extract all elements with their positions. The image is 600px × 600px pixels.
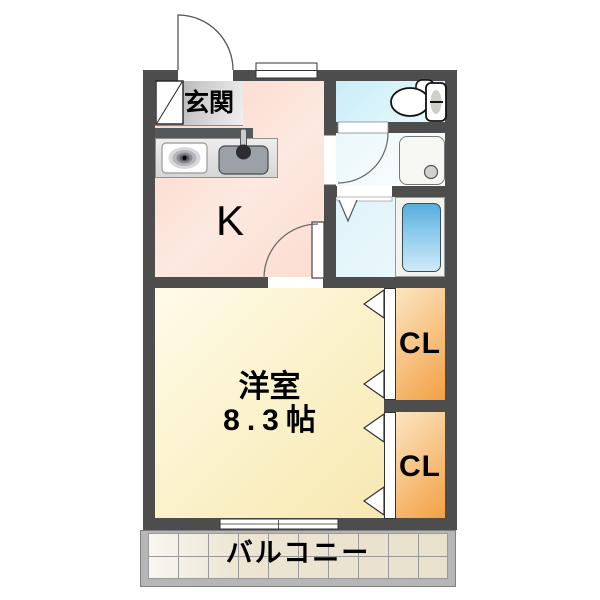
floor-plan: 玄関 K 洋室 8.3帖 CL CL バルコニー — [0, 0, 600, 600]
wall-toilet — [336, 122, 445, 133]
closet-bottom-label: CL — [395, 450, 445, 485]
wall-kitchen-divider — [324, 70, 336, 288]
wall-closet-divider — [384, 400, 445, 412]
kitchen-label: K — [210, 197, 250, 245]
closet-top-label: CL — [395, 327, 445, 362]
balcony-label: バルコニー — [140, 538, 456, 569]
kitchen-counter — [155, 138, 278, 178]
wall-bathroom — [336, 186, 445, 197]
wall-bottom — [143, 518, 457, 530]
kitchen-backsplash — [155, 128, 253, 138]
wall-left — [143, 70, 155, 530]
bathtub-icon — [402, 203, 441, 272]
entrance-door-swing-icon — [178, 15, 233, 70]
main-room-label: 洋室 — [155, 369, 384, 405]
genkan-label: 玄関 — [184, 89, 234, 118]
room-toilet — [336, 81, 445, 122]
wall-top — [143, 70, 457, 81]
wall-mainroom-divider — [143, 277, 457, 288]
wall-right — [445, 70, 457, 530]
main-room-size-label: 8.3帖 — [155, 404, 384, 439]
washer-pan-icon — [399, 136, 445, 185]
